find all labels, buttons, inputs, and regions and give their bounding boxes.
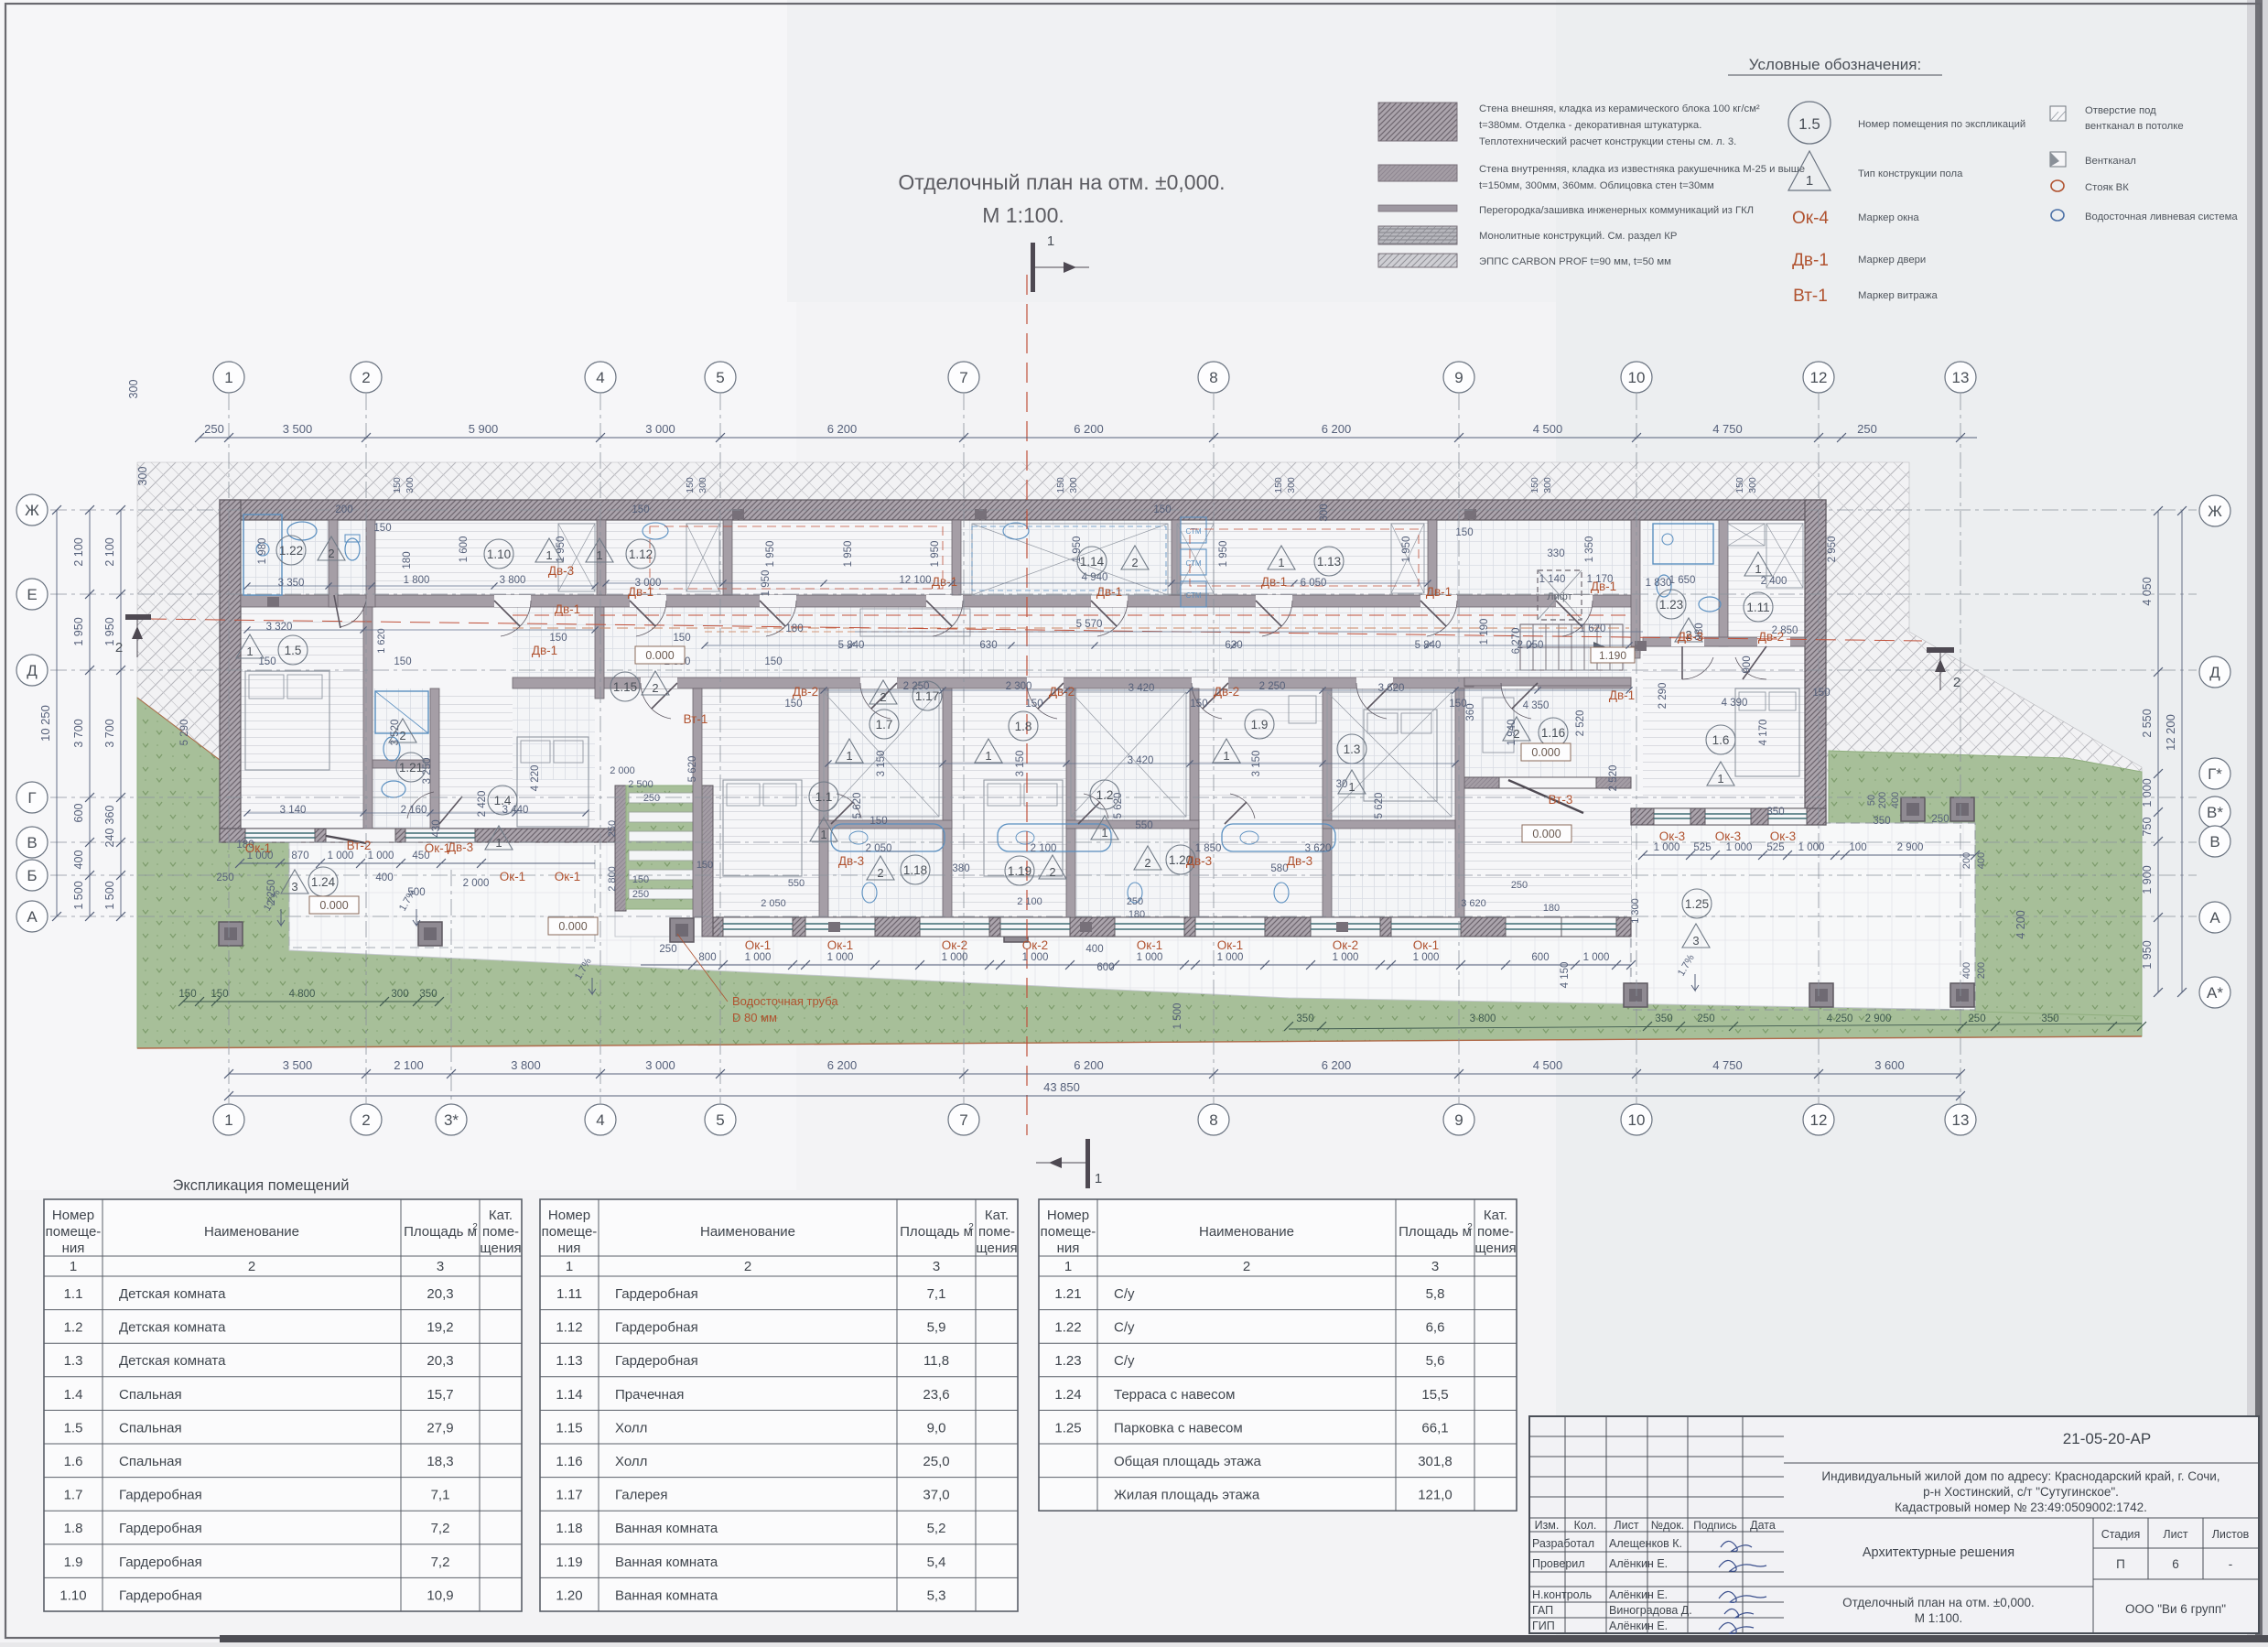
svg-text:1: 1 bbox=[1101, 826, 1107, 840]
svg-text:350: 350 bbox=[1873, 816, 1890, 827]
svg-text:4 750: 4 750 bbox=[1712, 1058, 1743, 1072]
svg-text:1: 1 bbox=[596, 548, 602, 562]
svg-text:1: 1 bbox=[224, 369, 232, 386]
svg-text:400: 400 bbox=[1890, 792, 1901, 808]
svg-text:3 800: 3 800 bbox=[511, 1058, 541, 1072]
svg-text:1 620: 1 620 bbox=[376, 628, 387, 654]
svg-text:1.20: 1.20 bbox=[556, 1587, 582, 1603]
svg-text:800: 800 bbox=[698, 952, 716, 963]
svg-text:5: 5 bbox=[716, 1111, 724, 1129]
svg-text:1.6: 1.6 bbox=[64, 1454, 83, 1469]
svg-text:4 390: 4 390 bbox=[1722, 698, 1748, 709]
svg-text:1 000: 1 000 bbox=[745, 952, 772, 963]
svg-text:Ок-1: Ок-1 bbox=[1217, 938, 1243, 952]
svg-text:3 800: 3 800 bbox=[1470, 1013, 1496, 1024]
svg-text:150: 150 bbox=[632, 504, 649, 515]
svg-text:Стена внутренняя, кладка из из: Стена внутренняя, кладка из известняка р… bbox=[1479, 164, 1805, 175]
svg-text:Б: Б bbox=[27, 867, 37, 884]
svg-text:ГАП: ГАП bbox=[1532, 1604, 1553, 1617]
svg-text:1: 1 bbox=[1278, 556, 1284, 569]
svg-text:37,0: 37,0 bbox=[923, 1488, 949, 1503]
svg-text:4 350: 4 350 bbox=[1523, 700, 1550, 711]
svg-text:1: 1 bbox=[1095, 1171, 1102, 1186]
svg-text:23,6: 23,6 bbox=[923, 1387, 949, 1403]
svg-text:Гардеробная: Гардеробная bbox=[119, 1488, 202, 1503]
svg-text:1: 1 bbox=[224, 1111, 232, 1129]
svg-text:1 000: 1 000 bbox=[1022, 952, 1049, 963]
svg-text:250: 250 bbox=[1127, 896, 1143, 907]
svg-text:1: 1 bbox=[1755, 562, 1761, 576]
svg-text:600: 600 bbox=[1096, 962, 1114, 973]
svg-text:250: 250 bbox=[659, 944, 676, 955]
svg-text:Г*: Г* bbox=[2208, 765, 2222, 783]
svg-text:помеще-: помеще- bbox=[1041, 1224, 1096, 1240]
svg-text:3 600: 3 600 bbox=[1874, 1058, 1905, 1072]
svg-text:2: 2 bbox=[362, 369, 370, 386]
svg-text:550: 550 bbox=[788, 878, 805, 889]
svg-text:300: 300 bbox=[136, 467, 149, 486]
svg-text:0.000: 0.000 bbox=[1532, 828, 1561, 840]
svg-text:1.21: 1.21 bbox=[1054, 1286, 1081, 1302]
svg-text:Маркер витража: Маркер витража bbox=[1858, 290, 1938, 301]
svg-text:1: 1 bbox=[985, 749, 991, 763]
svg-text:900: 900 bbox=[1742, 656, 1753, 673]
svg-text:ния: ния bbox=[558, 1241, 581, 1256]
svg-text:2 500: 2 500 bbox=[628, 779, 653, 790]
svg-text:1 000: 1 000 bbox=[1654, 842, 1680, 853]
svg-text:150: 150 bbox=[1529, 477, 1540, 493]
svg-text:150: 150 bbox=[764, 656, 782, 667]
svg-text:19,2: 19,2 bbox=[427, 1320, 453, 1336]
svg-text:Дв-1: Дв-1 bbox=[532, 644, 557, 657]
svg-text:180: 180 bbox=[402, 551, 413, 569]
svg-text:1 980: 1 980 bbox=[257, 538, 268, 565]
svg-text:2: 2 bbox=[968, 1222, 974, 1232]
svg-text:ГИП: ГИП bbox=[1532, 1620, 1555, 1632]
svg-text:Вт-2: Вт-2 bbox=[347, 839, 372, 852]
svg-text:300: 300 bbox=[1747, 477, 1758, 493]
svg-text:СТМ: СТМ bbox=[1185, 559, 1201, 568]
svg-text:400: 400 bbox=[72, 851, 85, 870]
svg-text:5,8: 5,8 bbox=[1426, 1286, 1445, 1302]
svg-text:6: 6 bbox=[2172, 1557, 2179, 1571]
svg-text:1: 1 bbox=[1806, 173, 1813, 189]
svg-text:250: 250 bbox=[607, 820, 618, 837]
svg-text:поме-: поме- bbox=[1477, 1224, 1514, 1240]
svg-text:1: 1 bbox=[1223, 749, 1229, 763]
svg-text:1.5: 1.5 bbox=[1798, 115, 1820, 133]
svg-text:550: 550 bbox=[1135, 820, 1152, 831]
svg-text:5,3: 5,3 bbox=[927, 1587, 946, 1603]
svg-text:Условные обозначения:: Условные обозначения: bbox=[1749, 56, 1921, 73]
svg-text:150: 150 bbox=[373, 523, 391, 534]
svg-text:1 950: 1 950 bbox=[1401, 536, 1412, 563]
svg-text:Гардеробная: Гардеробная bbox=[119, 1587, 202, 1603]
svg-text:Ванная комната: Ванная комната bbox=[615, 1555, 718, 1570]
svg-text:1.22: 1.22 bbox=[279, 544, 303, 558]
svg-text:1 300: 1 300 bbox=[1630, 898, 1641, 924]
svg-text:Площадь м: Площадь м bbox=[900, 1224, 973, 1240]
svg-text:Вт-1: Вт-1 bbox=[684, 712, 708, 726]
svg-text:2: 2 bbox=[1953, 675, 1960, 690]
svg-text:3 000: 3 000 bbox=[645, 422, 675, 436]
svg-text:Прачечная: Прачечная bbox=[615, 1387, 684, 1403]
svg-text:6 200: 6 200 bbox=[827, 1058, 858, 1072]
svg-text:1.8: 1.8 bbox=[1015, 720, 1032, 733]
svg-text:1.18: 1.18 bbox=[903, 863, 927, 877]
svg-text:1: 1 bbox=[1348, 780, 1355, 794]
svg-text:Терраса с навесом: Терраса с навесом bbox=[1114, 1387, 1235, 1403]
svg-text:4 050: 4 050 bbox=[2141, 577, 2154, 605]
svg-text:1.5: 1.5 bbox=[64, 1420, 83, 1436]
svg-text:2 520: 2 520 bbox=[1575, 710, 1586, 737]
svg-text:Лист: Лист bbox=[1614, 1519, 1638, 1532]
svg-text:600: 600 bbox=[72, 804, 85, 823]
svg-text:1 950: 1 950 bbox=[2141, 940, 2154, 969]
svg-text:330: 330 bbox=[1547, 548, 1564, 559]
svg-text:Вт-1: Вт-1 bbox=[1793, 287, 1828, 306]
svg-text:Д: Д bbox=[2209, 664, 2220, 681]
svg-text:Архитектурные решения: Архитектурные решения bbox=[1863, 1545, 2014, 1560]
svg-text:1 950: 1 950 bbox=[930, 541, 941, 568]
svg-text:D 80 мм: D 80 мм bbox=[732, 1011, 777, 1024]
svg-text:Дв-2: Дв-2 bbox=[1758, 630, 1784, 644]
svg-text:150: 150 bbox=[1812, 688, 1830, 699]
svg-text:5 570: 5 570 bbox=[1076, 619, 1103, 630]
svg-text:5 900: 5 900 bbox=[469, 422, 499, 436]
svg-text:27,9: 27,9 bbox=[427, 1420, 453, 1436]
svg-text:180: 180 bbox=[1543, 903, 1560, 914]
svg-text:250: 250 bbox=[1511, 880, 1528, 891]
svg-text:250: 250 bbox=[643, 793, 660, 804]
svg-text:0.000: 0.000 bbox=[558, 920, 587, 933]
svg-text:Алёнкин Е.: Алёнкин Е. bbox=[1609, 1557, 1668, 1570]
svg-text:ния: ния bbox=[62, 1241, 85, 1256]
svg-text:2: 2 bbox=[328, 547, 334, 560]
svg-text:Ок-1: Ок-1 bbox=[827, 938, 853, 952]
svg-text:1 850: 1 850 bbox=[1195, 843, 1222, 854]
svg-text:150: 150 bbox=[1734, 477, 1745, 493]
svg-text:1 000: 1 000 bbox=[1583, 952, 1610, 963]
svg-text:5,6: 5,6 bbox=[1426, 1353, 1445, 1369]
svg-text:350: 350 bbox=[1766, 807, 1784, 818]
svg-text:1 620: 1 620 bbox=[1580, 623, 1606, 634]
svg-text:Ванная комната: Ванная комната bbox=[615, 1521, 718, 1536]
svg-text:301,8: 301,8 bbox=[1418, 1454, 1453, 1469]
svg-text:Стена внешняя, кладка из керам: Стена внешняя, кладка из керамического б… bbox=[1479, 103, 1760, 114]
svg-text:1 500: 1 500 bbox=[1172, 1003, 1183, 1030]
svg-text:300: 300 bbox=[1319, 504, 1330, 521]
svg-text:150: 150 bbox=[178, 989, 196, 1000]
svg-text:12 200: 12 200 bbox=[2164, 714, 2177, 751]
svg-text:А: А bbox=[2209, 909, 2220, 926]
svg-text:2 400: 2 400 bbox=[1761, 576, 1787, 587]
svg-text:щения: щения bbox=[976, 1241, 1017, 1256]
svg-text:Перегородка/зашивка инженерных: Перегородка/зашивка инженерных коммуника… bbox=[1479, 205, 1754, 216]
svg-text:3 140: 3 140 bbox=[280, 805, 307, 816]
svg-text:4 220: 4 220 bbox=[530, 765, 541, 792]
svg-text:43 850: 43 850 bbox=[1043, 1080, 1080, 1094]
svg-text:1 950: 1 950 bbox=[72, 617, 85, 645]
svg-text:Детская комната: Детская комната bbox=[119, 1353, 226, 1369]
svg-text:300: 300 bbox=[391, 989, 408, 1000]
svg-text:С/у: С/у bbox=[1114, 1353, 1135, 1369]
svg-text:Дв-3: Дв-3 bbox=[448, 840, 473, 854]
svg-text:Гардеробная: Гардеробная bbox=[119, 1555, 202, 1570]
svg-text:2 100: 2 100 bbox=[1017, 896, 1042, 907]
svg-text:1.24: 1.24 bbox=[311, 875, 336, 889]
svg-text:1.3: 1.3 bbox=[64, 1353, 83, 1369]
svg-text:350: 350 bbox=[1296, 1013, 1313, 1024]
svg-text:21-05-20-АР: 21-05-20-АР bbox=[2063, 1430, 2151, 1447]
svg-text:3: 3 bbox=[437, 1259, 444, 1274]
svg-text:240: 240 bbox=[103, 829, 116, 848]
svg-text:3 800: 3 800 bbox=[500, 575, 526, 586]
svg-text:4 200: 4 200 bbox=[2014, 910, 2027, 938]
svg-text:Кат.: Кат. bbox=[985, 1208, 1009, 1223]
svg-text:Холл: Холл bbox=[615, 1454, 647, 1469]
svg-text:щения: щения bbox=[1474, 1241, 1516, 1256]
svg-text:1 000: 1 000 bbox=[942, 952, 968, 963]
svg-text:2: 2 bbox=[1144, 856, 1150, 870]
svg-text:250: 250 bbox=[1857, 422, 1877, 436]
svg-text:250: 250 bbox=[632, 889, 649, 900]
svg-text:300: 300 bbox=[697, 477, 708, 493]
svg-text:ООО "Ви 6 групп": ООО "Ви 6 групп" bbox=[2125, 1602, 2226, 1616]
svg-text:7,1: 7,1 bbox=[431, 1488, 450, 1503]
svg-text:150: 150 bbox=[632, 874, 649, 885]
svg-text:1.9: 1.9 bbox=[1251, 718, 1269, 731]
svg-text:Гардеробная: Гардеробная bbox=[615, 1353, 698, 1369]
svg-text:Разработал: Разработал bbox=[1532, 1537, 1594, 1550]
svg-text:1 830: 1 830 bbox=[1646, 578, 1672, 589]
svg-text:1.4: 1.4 bbox=[64, 1387, 83, 1403]
svg-text:Д: Д bbox=[27, 662, 38, 679]
svg-text:Дв-3: Дв-3 bbox=[1678, 630, 1703, 644]
svg-text:1: 1 bbox=[1717, 772, 1723, 786]
svg-text:Отделочный план на отм. ±0,000: Отделочный план на отм. ±0,000. bbox=[898, 170, 1225, 194]
svg-text:5: 5 bbox=[716, 369, 724, 386]
svg-text:2: 2 bbox=[1049, 865, 1055, 879]
svg-text:2 290: 2 290 bbox=[1658, 683, 1669, 710]
svg-text:1.15: 1.15 bbox=[613, 680, 637, 694]
svg-text:2: 2 bbox=[472, 1222, 478, 1232]
svg-text:1.25: 1.25 bbox=[1685, 897, 1709, 911]
svg-text:Кат.: Кат. bbox=[489, 1208, 513, 1223]
svg-text:1.11: 1.11 bbox=[556, 1286, 582, 1302]
svg-text:1 650: 1 650 bbox=[1669, 575, 1696, 586]
svg-text:Ок-3: Ок-3 bbox=[1659, 829, 1685, 843]
svg-text:Кат.: Кат. bbox=[1484, 1208, 1507, 1223]
svg-text:1.13: 1.13 bbox=[1317, 555, 1341, 569]
svg-text:18,3: 18,3 bbox=[427, 1454, 453, 1469]
svg-text:250: 250 bbox=[1968, 1013, 1985, 1024]
svg-text:1.21: 1.21 bbox=[399, 761, 423, 775]
svg-text:150: 150 bbox=[1273, 477, 1284, 493]
svg-text:Алёнкин Е.: Алёнкин Е. bbox=[1609, 1620, 1668, 1632]
svg-text:300: 300 bbox=[127, 380, 140, 399]
svg-text:9: 9 bbox=[1454, 369, 1463, 386]
svg-text:С/у: С/у bbox=[1114, 1320, 1135, 1336]
svg-text:2: 2 bbox=[115, 640, 123, 656]
svg-text:1 000: 1 000 bbox=[1217, 952, 1244, 963]
svg-text:7: 7 bbox=[959, 369, 967, 386]
svg-text:Изм.: Изм. bbox=[1535, 1519, 1560, 1532]
svg-text:1.2: 1.2 bbox=[1096, 788, 1114, 802]
svg-text:150: 150 bbox=[1025, 699, 1042, 710]
svg-text:1.11: 1.11 bbox=[1746, 601, 1769, 614]
svg-text:Номер: Номер bbox=[52, 1208, 94, 1223]
svg-text:5,9: 5,9 bbox=[927, 1320, 946, 1336]
svg-text:3 420: 3 420 bbox=[1128, 755, 1154, 766]
svg-text:1: 1 bbox=[820, 828, 826, 841]
svg-text:1.16: 1.16 bbox=[1541, 726, 1565, 740]
svg-text:1.23: 1.23 bbox=[1054, 1353, 1081, 1369]
svg-text:-: - bbox=[2229, 1557, 2233, 1571]
svg-text:t=150мм, 300мм, 360мм. Облицов: t=150мм, 300мм, 360мм. Облицовка стен t=… bbox=[1479, 180, 1714, 191]
svg-text:1.7: 1.7 bbox=[876, 718, 893, 731]
svg-text:12: 12 bbox=[1810, 1111, 1828, 1129]
svg-text:Водосточная труба: Водосточная труба bbox=[732, 994, 838, 1008]
svg-text:2: 2 bbox=[1243, 1259, 1250, 1274]
svg-text:180: 180 bbox=[785, 623, 803, 634]
svg-text:15,5: 15,5 bbox=[1421, 1387, 1448, 1403]
svg-text:Монолитные конструкций. См. ра: Монолитные конструкций. См. раздел КР bbox=[1479, 231, 1677, 242]
svg-text:помеще-: помеще- bbox=[542, 1224, 598, 1240]
svg-text:3 620: 3 620 bbox=[1378, 683, 1405, 694]
svg-text:150: 150 bbox=[685, 477, 696, 493]
svg-text:1 800: 1 800 bbox=[404, 575, 430, 586]
svg-text:3 620: 3 620 bbox=[1461, 898, 1486, 909]
svg-text:66,1: 66,1 bbox=[1421, 1420, 1448, 1436]
svg-text:Стояк ВК: Стояк ВК bbox=[2085, 182, 2129, 193]
svg-text:400: 400 bbox=[1961, 962, 1972, 979]
svg-text:2 900: 2 900 bbox=[1865, 1013, 1892, 1024]
svg-text:2 100: 2 100 bbox=[394, 1058, 424, 1072]
svg-text:2 100: 2 100 bbox=[103, 537, 116, 566]
svg-text:Алещенков К.: Алещенков К. bbox=[1609, 1537, 1682, 1550]
svg-text:2: 2 bbox=[362, 1111, 370, 1129]
svg-text:9,0: 9,0 bbox=[927, 1420, 946, 1436]
svg-text:380: 380 bbox=[952, 863, 969, 874]
svg-text:Дв-3: Дв-3 bbox=[1287, 854, 1312, 868]
svg-text:150: 150 bbox=[869, 816, 887, 827]
svg-text:2: 2 bbox=[744, 1259, 751, 1274]
svg-text:поме-: поме- bbox=[978, 1224, 1015, 1240]
svg-text:6,6: 6,6 bbox=[1426, 1320, 1445, 1336]
svg-text:Холл: Холл bbox=[615, 1420, 647, 1436]
svg-text:150: 150 bbox=[392, 477, 403, 493]
svg-text:15,7: 15,7 bbox=[427, 1387, 453, 1403]
svg-text:1.12: 1.12 bbox=[629, 547, 653, 561]
svg-text:Вентканал: Вентканал bbox=[2085, 156, 2136, 167]
svg-text:180: 180 bbox=[1129, 909, 1145, 920]
svg-text:2 800: 2 800 bbox=[607, 866, 618, 892]
svg-text:2: 2 bbox=[1131, 556, 1138, 569]
svg-text:1 350: 1 350 bbox=[1584, 536, 1595, 563]
svg-text:2: 2 bbox=[248, 1259, 255, 1274]
svg-text:2 550: 2 550 bbox=[2141, 709, 2154, 737]
svg-text:0.000: 0.000 bbox=[645, 649, 674, 662]
svg-text:Индивидуальный жилой дом по ад: Индивидуальный жилой дом по адресу: Крас… bbox=[1821, 1469, 2219, 1483]
svg-text:3 500: 3 500 bbox=[283, 1058, 313, 1072]
svg-text:6 200: 6 200 bbox=[827, 422, 858, 436]
svg-text:4 250: 4 250 bbox=[1827, 1013, 1853, 1024]
svg-text:8: 8 bbox=[1209, 1111, 1217, 1129]
svg-text:13: 13 bbox=[1952, 1111, 1970, 1129]
svg-text:Гардеробная: Гардеробная bbox=[119, 1521, 202, 1536]
svg-text:Теплотехнический расчет констр: Теплотехнический расчет конструкции стен… bbox=[1479, 136, 1736, 147]
svg-text:Дв-3: Дв-3 bbox=[838, 854, 864, 868]
svg-text:1 000: 1 000 bbox=[368, 851, 394, 861]
svg-text:7,1: 7,1 bbox=[927, 1286, 946, 1302]
svg-text:150: 150 bbox=[549, 633, 567, 644]
svg-text:№док.: №док. bbox=[1651, 1519, 1685, 1532]
svg-text:Тип конструкции пола: Тип конструкции пола bbox=[1858, 168, 1963, 179]
svg-text:1.6: 1.6 bbox=[1712, 733, 1730, 747]
svg-text:Отверстие под: Отверстие под bbox=[2085, 105, 2156, 116]
svg-text:4 150: 4 150 bbox=[1560, 962, 1571, 989]
svg-text:Наименование: Наименование bbox=[700, 1224, 795, 1240]
svg-text:150: 150 bbox=[211, 989, 228, 1000]
svg-text:1 500: 1 500 bbox=[103, 881, 116, 909]
svg-text:1 140: 1 140 bbox=[1539, 574, 1566, 585]
svg-text:1.8: 1.8 bbox=[64, 1521, 83, 1536]
svg-text:Дв-1: Дв-1 bbox=[1096, 585, 1122, 599]
svg-text:0.000: 0.000 bbox=[319, 899, 348, 912]
svg-text:Площадь м: Площадь м bbox=[1399, 1224, 1472, 1240]
svg-text:1.25: 1.25 bbox=[1054, 1420, 1081, 1436]
svg-text:150: 150 bbox=[394, 656, 411, 667]
svg-text:1 940: 1 940 bbox=[1507, 720, 1517, 746]
svg-text:Спальная: Спальная bbox=[119, 1454, 182, 1469]
svg-text:150: 150 bbox=[697, 860, 713, 871]
svg-text:5 290: 5 290 bbox=[179, 720, 190, 746]
svg-text:150: 150 bbox=[1055, 477, 1066, 493]
svg-text:Площадь м: Площадь м bbox=[404, 1224, 477, 1240]
svg-text:ния: ния bbox=[1057, 1241, 1080, 1256]
svg-text:1 000: 1 000 bbox=[2141, 778, 2154, 807]
svg-text:525: 525 bbox=[1693, 842, 1711, 853]
svg-text:1.2: 1.2 bbox=[64, 1320, 83, 1336]
svg-text:1 950: 1 950 bbox=[1218, 541, 1229, 568]
svg-text:350: 350 bbox=[2041, 1013, 2058, 1024]
svg-text:0.000: 0.000 bbox=[1531, 746, 1560, 759]
svg-text:Ок-1: Ок-1 bbox=[500, 870, 525, 883]
svg-text:Стадия: Стадия bbox=[2101, 1528, 2141, 1541]
svg-text:4 750: 4 750 bbox=[1712, 422, 1743, 436]
svg-text:поме-: поме- bbox=[482, 1224, 519, 1240]
svg-text:Дв-3: Дв-3 bbox=[548, 564, 574, 578]
svg-text:250: 250 bbox=[1697, 1013, 1714, 1024]
svg-text:1 000: 1 000 bbox=[1413, 952, 1440, 963]
svg-text:Алёнкин Е.: Алёнкин Е. bbox=[1609, 1588, 1668, 1601]
svg-text:Дв-2: Дв-2 bbox=[793, 685, 818, 699]
svg-text:Гардеробная: Гардеробная bbox=[615, 1286, 698, 1302]
svg-text:щения: щения bbox=[480, 1241, 521, 1256]
svg-text:Дв-1: Дв-1 bbox=[1792, 251, 1829, 270]
svg-text:t=380мм. Отделка - декоративна: t=380мм. Отделка - декоративная штукатур… bbox=[1479, 120, 1701, 131]
svg-text:Наименование: Наименование bbox=[1199, 1224, 1294, 1240]
svg-text:121,0: 121,0 bbox=[1418, 1488, 1453, 1503]
svg-text:1.14: 1.14 bbox=[556, 1387, 582, 1403]
svg-text:В: В bbox=[2209, 833, 2219, 851]
svg-text:3*: 3* bbox=[444, 1111, 459, 1129]
svg-text:250: 250 bbox=[204, 422, 224, 436]
svg-text:10,9: 10,9 bbox=[427, 1587, 453, 1603]
svg-text:1.1: 1.1 bbox=[815, 790, 833, 804]
svg-text:1.24: 1.24 bbox=[1054, 1387, 1081, 1403]
